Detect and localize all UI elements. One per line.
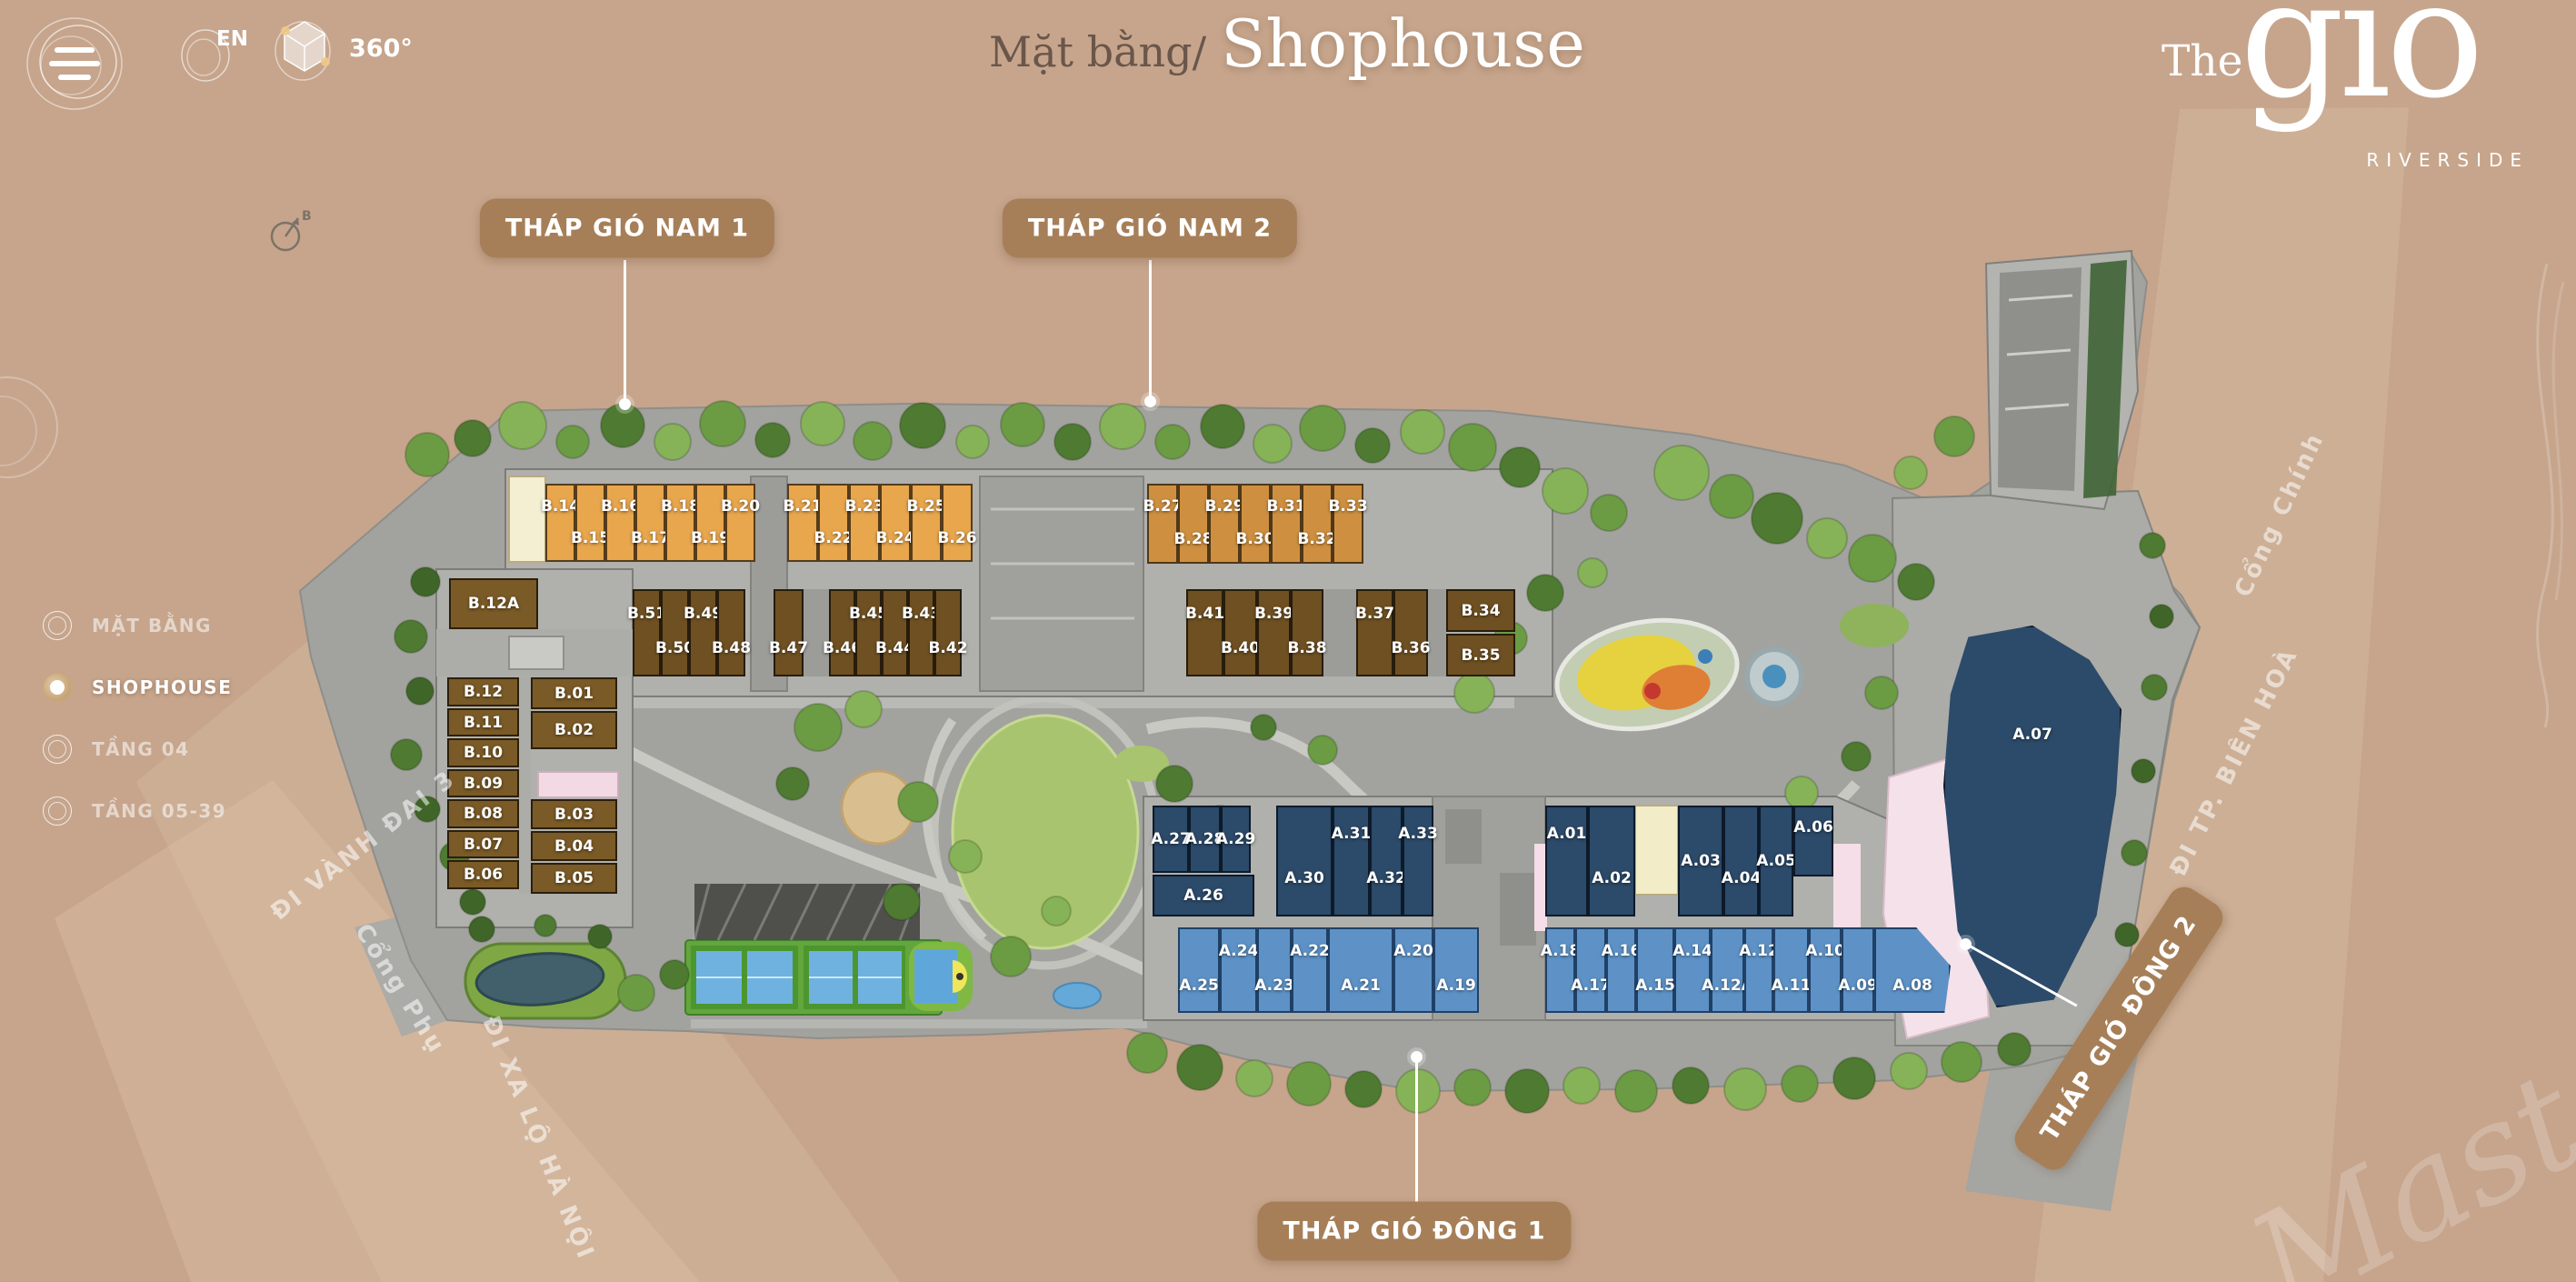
unit-a-14[interactable]: A.14 (1674, 927, 1711, 1013)
unit-a-31[interactable]: A.31 (1333, 806, 1370, 916)
unit-b-04[interactable]: B.04 (531, 831, 617, 861)
sidebar-item-label: TẦNG 04 (92, 738, 190, 760)
unit-b-51[interactable]: B.51 (633, 589, 661, 676)
unit-label: B.47 (769, 639, 808, 657)
unit-a-17[interactable]: A.17 (1575, 927, 1606, 1013)
leader-line-thap-gio-nam-1 (624, 260, 626, 404)
unit-a-03[interactable]: A.03 (1678, 806, 1723, 916)
leader-line-thap-gio-nam-2 (1149, 260, 1152, 401)
sidebar-item-tang-04[interactable]: TẦNG 04 (41, 731, 232, 767)
masterplan-screen: B.14B.15B.16B.17B.18B.19B.20B.21B.22B.23… (0, 0, 2576, 1282)
unit-label: B.06 (464, 866, 503, 884)
unit-a-28[interactable]: A.28 (1189, 806, 1221, 873)
language-button[interactable]: EN (178, 22, 278, 85)
unit-label: A.22 (1290, 942, 1330, 960)
unit-label: A.31 (1332, 825, 1372, 843)
unit-label: A.02 (1592, 869, 1632, 887)
unit-b-20[interactable]: B.20 (725, 484, 755, 562)
unit-label: B.30 (1235, 530, 1274, 548)
unit-b-31[interactable]: B.31 (1271, 484, 1302, 564)
unit-label: B.36 (1391, 639, 1430, 657)
unit-label: B.39 (1254, 605, 1293, 623)
unit-b-12a[interactable]: B.12A (449, 578, 538, 629)
unit-b-41[interactable]: B.41 (1186, 589, 1223, 676)
unit-label: A.30 (1284, 869, 1324, 887)
unit-a-22[interactable]: A.22 (1292, 927, 1328, 1013)
tower-label-thap-gio-dong-1[interactable]: THÁP GIÓ ĐÔNG 1 (1257, 1202, 1571, 1261)
unit-a-32[interactable]: A.32 (1370, 806, 1403, 916)
unit-label: B.32 (1297, 530, 1336, 548)
unit-b-25[interactable]: B.25 (911, 484, 942, 562)
unit-label: B.15 (571, 529, 610, 547)
unit-b-34[interactable]: B.34 (1446, 589, 1515, 632)
leader-dot-thap-gio-nam-1 (619, 398, 631, 410)
unit-label: A.03 (1681, 852, 1721, 870)
unit-label: A.10 (1805, 942, 1845, 960)
unit-a-08[interactable]: A.08 (1874, 927, 1951, 1013)
unit-b-03[interactable]: B.03 (531, 799, 617, 829)
unit-b-38[interactable]: B.38 (1291, 589, 1323, 676)
unit-label: A.21 (1341, 977, 1381, 995)
unit-label: B.12A (468, 595, 519, 613)
unit-b-29[interactable]: B.29 (1209, 484, 1240, 564)
unit-label: B.04 (554, 837, 594, 856)
view-360-label: 360° (349, 35, 413, 63)
unit-label: B.29 (1204, 497, 1243, 516)
unit-label: A.15 (1635, 977, 1675, 995)
unit-label: A.29 (1216, 830, 1256, 848)
unit-label: B.24 (875, 529, 914, 547)
unit-a-18[interactable]: A.18 (1545, 927, 1575, 1013)
unit-a-33[interactable]: A.33 (1403, 806, 1433, 916)
unit-label: B.48 (712, 639, 751, 657)
unit-label: A.18 (1541, 942, 1581, 960)
unit-label: A.24 (1219, 942, 1259, 960)
sidebar-item-mat-bang[interactable]: MẶT BẰNG (41, 607, 232, 644)
unit-b-32[interactable]: B.32 (1302, 484, 1333, 564)
unit-b-01[interactable]: B.01 (531, 677, 617, 709)
unit-b-37[interactable]: B.37 (1356, 589, 1393, 676)
unit-b-42[interactable]: B.42 (934, 589, 962, 676)
leader-dot-thap-gio-nam-2 (1144, 396, 1156, 407)
unit-label: B.27 (1143, 497, 1182, 516)
unit-label: B.26 (937, 529, 976, 547)
unit-b-50[interactable]: B.50 (661, 589, 689, 676)
unit-b-16[interactable]: B.16 (605, 484, 635, 562)
leader-line-thap-gio-dong-1 (1415, 1057, 1418, 1202)
tower-label-thap-gio-nam-1[interactable]: THÁP GIÓ NAM 1 (480, 199, 774, 258)
unit-b-33[interactable]: B.33 (1333, 484, 1363, 564)
unit-label: A.16 (1602, 942, 1642, 960)
unit-a-15[interactable]: A.15 (1636, 927, 1674, 1013)
unit-b-05[interactable]: B.05 (531, 863, 617, 894)
unit-a-06[interactable]: A.06 (1793, 806, 1833, 876)
logo-riverside: RIVERSIDE (2366, 149, 2529, 171)
unit-label: B.37 (1355, 605, 1394, 623)
unit-label: A.11 (1772, 977, 1812, 995)
unit-label: B.31 (1266, 497, 1305, 516)
unit-b-47[interactable]: B.47 (774, 589, 804, 676)
unit-label: A.09 (1838, 977, 1878, 995)
compass-icon: B (262, 207, 316, 262)
unit-label: A.32 (1366, 869, 1406, 887)
tower-label-thap-gio-nam-2[interactable]: THÁP GIÓ NAM 2 (1003, 199, 1297, 258)
unit-b-12[interactable]: B.12 (447, 677, 519, 706)
sidebar-item-label: SHOPHOUSE (92, 676, 232, 698)
unit-b-22[interactable]: B.22 (818, 484, 849, 562)
unit-label: B.21 (783, 497, 822, 516)
page-title-prefix: Mặt bằng/ (989, 27, 1206, 76)
unit-label: B.22 (814, 529, 853, 547)
sidebar-item-label: MẶT BẰNG (92, 615, 212, 636)
unit-label: B.17 (631, 529, 670, 547)
unit-label: B.19 (691, 529, 730, 547)
unit-a-05[interactable]: A.05 (1759, 806, 1793, 916)
unit-label: B.34 (1461, 602, 1500, 620)
unit-b-26[interactable]: B.26 (942, 484, 973, 562)
unit-b-10[interactable]: B.10 (447, 738, 519, 767)
unit-label: A.05 (1756, 852, 1796, 870)
unit-label: B.07 (464, 836, 503, 854)
unit-a-19[interactable]: A.19 (1433, 927, 1479, 1013)
unit-label: A.19 (1436, 977, 1476, 995)
unit-b-06[interactable]: B.06 (447, 860, 519, 889)
unit-a-29[interactable]: A.29 (1221, 806, 1251, 873)
unit-label: B.08 (464, 805, 503, 823)
sidebar-item-shophouse[interactable]: SHOPHOUSE (41, 669, 232, 706)
unit-label: B.14 (541, 497, 580, 516)
unit-label: B.16 (601, 497, 640, 516)
unit-b-19[interactable]: B.19 (695, 484, 725, 562)
unit-b-44[interactable]: B.44 (882, 589, 908, 676)
unit-b-49[interactable]: B.49 (689, 589, 717, 676)
unit-label: A.25 (1179, 977, 1219, 995)
unit-a-07[interactable]: A.07 (1943, 626, 2122, 1007)
unit-a-10[interactable]: A.10 (1809, 927, 1842, 1013)
unit-label: B.11 (464, 714, 503, 732)
unit-label: B.02 (554, 721, 594, 739)
ring-icon (41, 795, 74, 827)
unit-a-20[interactable]: A.20 (1393, 927, 1433, 1013)
leader-dot-thap-gio-dong-1 (1411, 1051, 1423, 1063)
unit-label: B.09 (464, 775, 503, 793)
unit-b-24[interactable]: B.24 (880, 484, 911, 562)
brand-logo: The gió RIVERSIDE (2162, 0, 2543, 218)
unit-label: A.23 (1254, 977, 1294, 995)
unit-b-45[interactable]: B.45 (855, 589, 882, 676)
unit-b-11[interactable]: B.11 (447, 708, 519, 736)
unit-b-15[interactable]: B.15 (575, 484, 605, 562)
unit-a-12[interactable]: A.12 (1744, 927, 1773, 1013)
floor-nav-sidebar: MẶT BẰNG SHOPHOUSE TẦNG 04 TẦNG 05-39 (41, 607, 232, 829)
unit-label: A.04 (1722, 869, 1762, 887)
ring-icon (41, 609, 74, 642)
unit-label: B.03 (554, 806, 594, 824)
unit-b-21[interactable]: B.21 (787, 484, 818, 562)
unit-b-14[interactable]: B.14 (545, 484, 575, 562)
unit-label: A.07 (2012, 726, 2052, 744)
unit-a-02[interactable]: A.02 (1588, 806, 1635, 916)
unit-b-02[interactable]: B.02 (531, 711, 617, 749)
unit-a-23[interactable]: A.23 (1257, 927, 1292, 1013)
unit-label: B.10 (464, 744, 503, 762)
unit-a-11[interactable]: A.11 (1773, 927, 1809, 1013)
unit-label: B.23 (844, 497, 884, 516)
unit-b-18[interactable]: B.18 (665, 484, 695, 562)
unit-b-35[interactable]: B.35 (1446, 634, 1515, 676)
unit-a-16[interactable]: A.16 (1606, 927, 1636, 1013)
unit-label: B.01 (554, 685, 594, 703)
unit-a-24[interactable]: A.24 (1220, 927, 1257, 1013)
unit-a-26[interactable]: A.26 (1153, 875, 1254, 916)
unit-a-21[interactable]: A.21 (1328, 927, 1393, 1013)
unit-a-25[interactable]: A.25 (1178, 927, 1220, 1013)
page-title: Mặt bằng/ Shophouse (989, 5, 1585, 82)
unit-b-07[interactable]: B.07 (447, 830, 519, 858)
unit-label: A.28 (1185, 830, 1225, 848)
ring-icon-active (41, 671, 74, 704)
unit-label: A.26 (1183, 886, 1223, 905)
menu-button[interactable] (18, 9, 136, 120)
unit-a-09[interactable]: A.09 (1842, 927, 1874, 1013)
unit-label: B.38 (1287, 639, 1326, 657)
unit-b-48[interactable]: B.48 (717, 589, 745, 676)
unit-b-27[interactable]: B.27 (1147, 484, 1178, 564)
unit-label: B.18 (661, 497, 700, 516)
unit-label: A.27 (1151, 830, 1191, 848)
unit-label: A.17 (1571, 977, 1611, 995)
unit-label: B.41 (1185, 605, 1224, 623)
ring-icon (41, 733, 74, 766)
unit-a-27[interactable]: A.27 (1153, 806, 1189, 873)
unit-b-23[interactable]: B.23 (849, 484, 880, 562)
unit-a-30[interactable]: A.30 (1276, 806, 1333, 916)
unit-label: A.20 (1393, 942, 1433, 960)
unit-a-12a[interactable]: A.12A (1711, 927, 1744, 1013)
unit-label: A.08 (1892, 977, 1932, 995)
view-360-button[interactable]: 360° (273, 15, 436, 87)
svg-text:B: B (302, 209, 312, 224)
unit-label: A.33 (1398, 825, 1438, 843)
logo-gio: gió (2240, 0, 2479, 122)
unit-b-30[interactable]: B.30 (1240, 484, 1271, 564)
unit-b-40[interactable]: B.40 (1223, 589, 1257, 676)
unit-label: B.35 (1461, 646, 1500, 665)
unit-label: A.06 (1793, 818, 1833, 836)
unit-b-46[interactable]: B.46 (829, 589, 855, 676)
unit-label: A.01 (1547, 825, 1587, 843)
unit-b-08[interactable]: B.08 (447, 799, 519, 828)
unit-label: B.40 (1221, 639, 1260, 657)
unit-b-28[interactable]: B.28 (1178, 484, 1209, 564)
unit-b-36[interactable]: B.36 (1393, 589, 1428, 676)
unit-label: B.42 (928, 639, 967, 657)
language-label: EN (216, 27, 248, 51)
unit-label: B.33 (1328, 497, 1367, 516)
sidebar-item-label: TẦNG 05-39 (92, 800, 226, 822)
unit-a-01[interactable]: A.01 (1545, 806, 1588, 916)
hamburger-icon (49, 47, 100, 80)
unit-label: B.25 (906, 497, 945, 516)
unit-b-17[interactable]: B.17 (635, 484, 665, 562)
unit-b-39[interactable]: B.39 (1257, 589, 1291, 676)
unit-label: B.28 (1173, 530, 1213, 548)
unit-a-04[interactable]: A.04 (1723, 806, 1759, 916)
unit-label: B.20 (721, 497, 760, 516)
leader-dot-thap-gio-dong-2 (1960, 938, 1972, 950)
unit-b-43[interactable]: B.43 (908, 589, 934, 676)
unit-label: A.14 (1672, 942, 1712, 960)
sidebar-item-tang-05-39[interactable]: TẦNG 05-39 (41, 793, 232, 829)
cube-360-icon (285, 22, 324, 71)
page-title-main: Shophouse (1221, 5, 1585, 82)
logo-the: The (2162, 36, 2242, 86)
unit-label: B.05 (554, 869, 594, 887)
unit-label: B.12 (464, 683, 503, 701)
